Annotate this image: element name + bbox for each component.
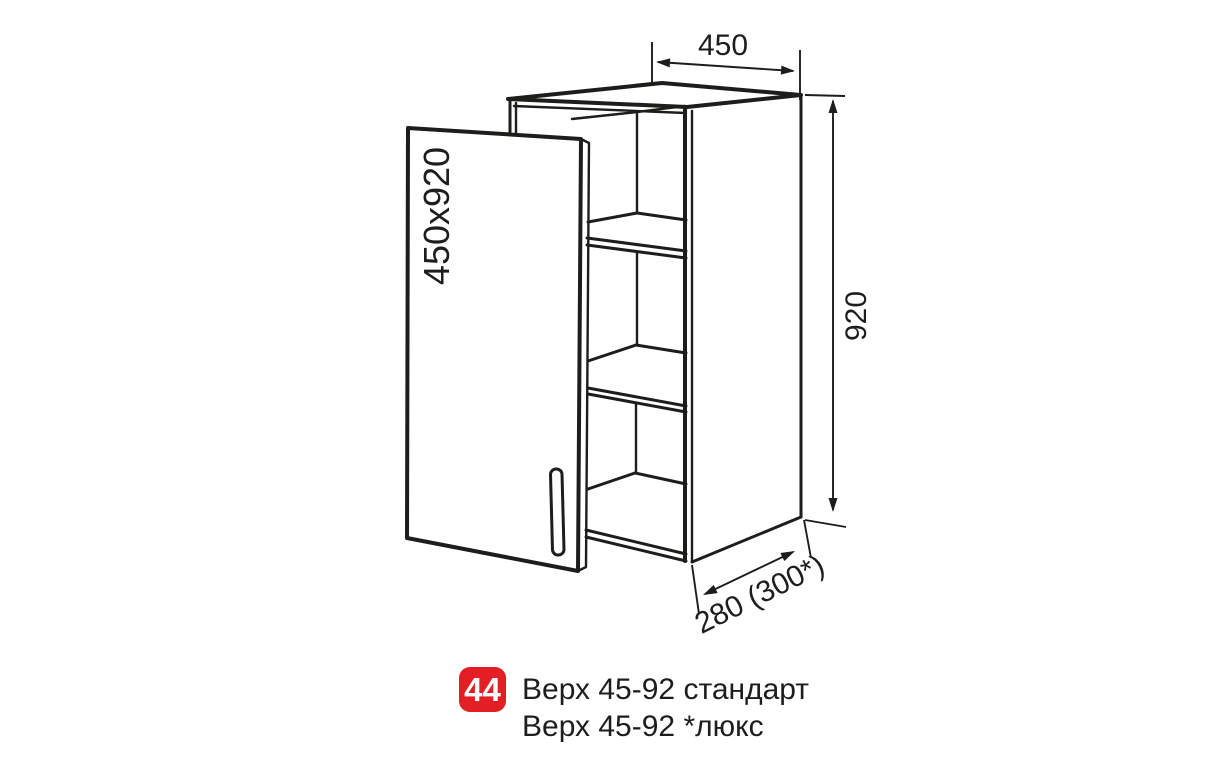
interior-back-corner bbox=[636, 112, 637, 473]
door-size-label: 450x920 bbox=[416, 147, 457, 285]
dimension-height: 920 bbox=[805, 95, 873, 527]
shelf-back-right-edge bbox=[637, 213, 686, 220]
bottom-back-left-edge bbox=[588, 473, 635, 489]
bottom-back-right-edge bbox=[635, 473, 686, 484]
cabinet-top-face bbox=[508, 83, 801, 107]
shelf-back-left-edge bbox=[588, 345, 636, 361]
shelf-front-edge bbox=[587, 238, 686, 251]
dimension-arrow-line bbox=[658, 62, 793, 71]
extension-line bbox=[805, 95, 845, 96]
shelf-upper bbox=[587, 213, 686, 258]
dim-height-label: 920 bbox=[840, 291, 873, 341]
cabinet-technical-drawing: 450x920 450 920 280 (300*) bbox=[0, 0, 1230, 769]
shelf-back-left-edge bbox=[588, 213, 637, 222]
bottom-panel bbox=[586, 473, 686, 561]
cabinet-door: 450x920 bbox=[407, 128, 589, 571]
caption-line-1: Верх 45-92 стандарт bbox=[522, 673, 809, 706]
arrowhead-up bbox=[829, 99, 838, 113]
arrowhead-down bbox=[829, 498, 838, 512]
dim-width-label: 450 bbox=[698, 29, 748, 62]
caption: 44 Верх 45-92 стандарт Верх 45-92 *люкс bbox=[459, 667, 809, 743]
arrowhead-left bbox=[703, 585, 718, 595]
caption-line-2: Верх 45-92 *люкс bbox=[522, 710, 764, 743]
shelf-back-right-edge bbox=[636, 345, 686, 353]
dim-depth-label: 280 (300*) bbox=[690, 548, 830, 640]
furniture-diagram-page: 450x920 450 920 280 (300*) bbox=[0, 0, 1230, 769]
dimension-depth: 280 (300*) bbox=[690, 520, 830, 641]
shelf-lower bbox=[588, 345, 686, 412]
door-handle bbox=[550, 469, 564, 555]
item-number: 44 bbox=[464, 671, 501, 708]
extension-line bbox=[805, 520, 846, 527]
